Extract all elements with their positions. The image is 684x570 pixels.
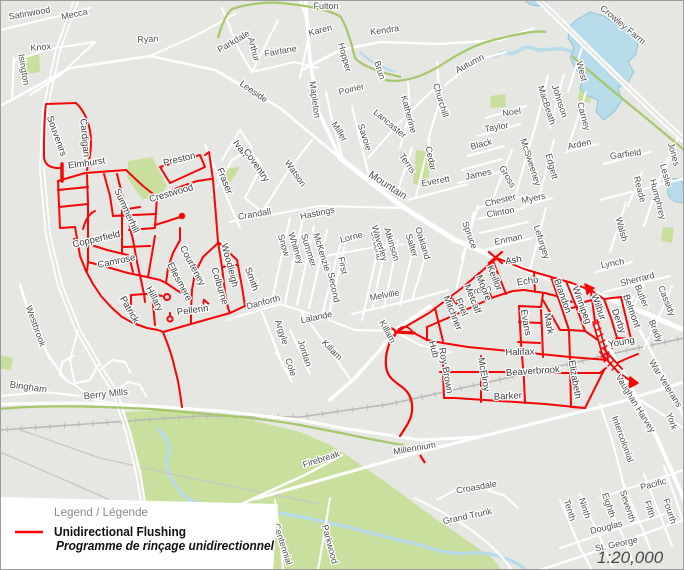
svg-text:1:20,000: 1:20,000 xyxy=(597,548,664,567)
svg-text:Programme de rinçage unidirect: Programme de rinçage unidirectionnel xyxy=(56,539,274,553)
svg-text:Legend / Légende: Legend / Légende xyxy=(54,505,148,519)
svg-text:Ryan: Ryan xyxy=(137,33,159,44)
svg-text:Halifax: Halifax xyxy=(505,346,535,358)
svg-text:Barker: Barker xyxy=(494,390,523,402)
svg-text:Fulton: Fulton xyxy=(313,1,338,11)
svg-text:Unidirectional Flushing: Unidirectional Flushing xyxy=(54,525,186,539)
